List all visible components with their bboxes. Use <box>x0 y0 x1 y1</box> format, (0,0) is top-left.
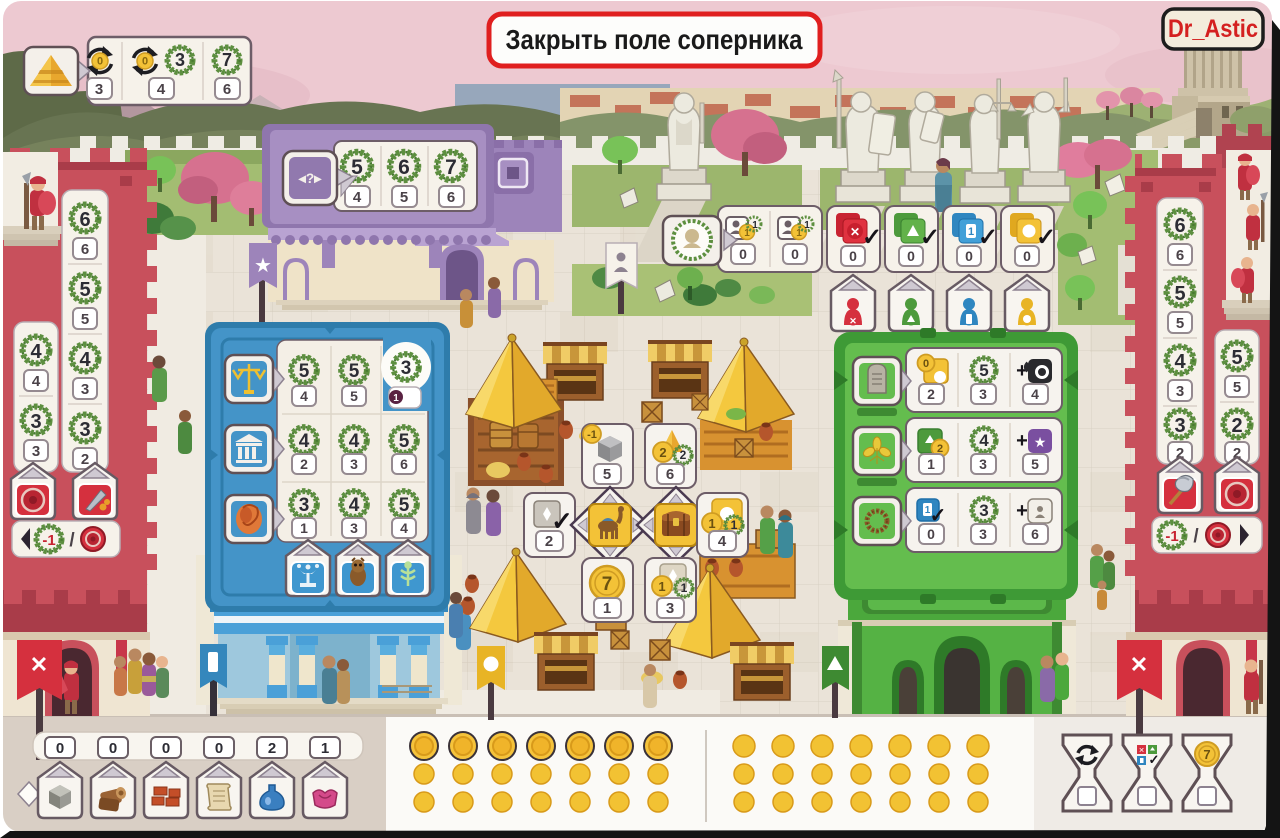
svg-text:3: 3 <box>32 443 40 460</box>
svg-text:1: 1 <box>804 220 810 231</box>
svg-text:5: 5 <box>79 279 90 301</box>
svg-text:4: 4 <box>32 373 41 390</box>
svg-text:✓: ✓ <box>920 224 940 251</box>
svg-text:3: 3 <box>401 358 412 379</box>
svg-text:6: 6 <box>1176 247 1184 264</box>
svg-text:5: 5 <box>399 431 410 452</box>
svg-text:5: 5 <box>1233 379 1241 396</box>
svg-text:7: 7 <box>445 156 457 179</box>
svg-text:-1: -1 <box>42 532 55 549</box>
svg-text:3: 3 <box>979 501 988 520</box>
svg-text:5: 5 <box>1176 315 1184 332</box>
svg-text:0: 0 <box>907 248 915 264</box>
svg-text:/: / <box>69 530 75 551</box>
svg-text:5: 5 <box>603 466 611 483</box>
svg-text:4: 4 <box>79 349 91 371</box>
svg-text:0: 0 <box>965 248 973 264</box>
svg-text:4: 4 <box>979 431 989 450</box>
svg-text:3: 3 <box>979 456 987 472</box>
svg-text:6: 6 <box>79 209 90 231</box>
svg-text:4: 4 <box>349 495 360 516</box>
svg-text:+: + <box>1016 500 1028 522</box>
svg-text:3: 3 <box>299 495 310 516</box>
svg-text:2: 2 <box>545 533 553 550</box>
svg-text:0: 0 <box>791 246 799 262</box>
svg-text:0: 0 <box>849 248 857 264</box>
svg-text:0: 0 <box>1023 248 1031 264</box>
svg-text:4: 4 <box>300 388 308 404</box>
svg-text:5: 5 <box>350 388 358 404</box>
svg-text:5: 5 <box>400 189 408 206</box>
svg-text:5: 5 <box>979 361 988 380</box>
svg-text:5: 5 <box>1231 347 1242 369</box>
svg-text:6: 6 <box>81 241 89 258</box>
svg-text:3: 3 <box>350 520 358 536</box>
svg-text:4: 4 <box>1174 351 1186 373</box>
svg-text:5: 5 <box>81 311 89 328</box>
svg-text:3: 3 <box>1174 415 1185 437</box>
svg-text:4: 4 <box>718 533 727 550</box>
svg-text:0: 0 <box>923 358 929 370</box>
svg-text:7: 7 <box>602 574 613 595</box>
svg-text:4: 4 <box>299 431 310 452</box>
svg-text:◂?▸: ◂?▸ <box>298 170 323 186</box>
svg-text:5: 5 <box>399 495 410 516</box>
svg-text:3: 3 <box>79 419 90 441</box>
svg-text:★: ★ <box>1034 434 1047 450</box>
svg-text:1: 1 <box>321 740 329 757</box>
svg-text:1: 1 <box>708 516 715 531</box>
svg-text:-1: -1 <box>1165 528 1178 545</box>
svg-text:5: 5 <box>349 361 360 382</box>
svg-text:3: 3 <box>30 411 41 433</box>
svg-text:0: 0 <box>927 526 935 542</box>
svg-text:✕: ✕ <box>849 316 857 326</box>
svg-text:6: 6 <box>1031 526 1039 542</box>
svg-text:6: 6 <box>1174 215 1185 237</box>
svg-text:5: 5 <box>299 361 310 382</box>
svg-text:1: 1 <box>300 520 308 536</box>
svg-text:2: 2 <box>1231 415 1242 437</box>
svg-text:-1: -1 <box>587 429 597 441</box>
svg-text:3: 3 <box>95 81 103 98</box>
svg-text:3: 3 <box>81 381 89 398</box>
svg-text:3: 3 <box>350 456 358 472</box>
svg-text:/: / <box>1193 526 1199 547</box>
svg-text:4: 4 <box>349 431 360 452</box>
svg-text:1: 1 <box>752 220 758 231</box>
svg-text:3: 3 <box>666 600 674 617</box>
svg-text:2: 2 <box>927 386 935 402</box>
svg-text:1: 1 <box>968 226 974 238</box>
svg-text:3: 3 <box>979 386 987 402</box>
svg-text:0: 0 <box>162 740 170 757</box>
svg-text:6: 6 <box>398 156 410 179</box>
svg-text:0: 0 <box>109 740 117 757</box>
svg-text:✕: ✕ <box>30 652 48 677</box>
svg-text:3: 3 <box>175 50 185 70</box>
svg-text:4: 4 <box>30 341 42 363</box>
svg-text:2: 2 <box>268 740 276 757</box>
svg-text:2: 2 <box>680 448 687 462</box>
svg-text:✕: ✕ <box>1130 652 1148 677</box>
svg-text:1: 1 <box>603 600 611 617</box>
svg-text:0: 0 <box>215 740 223 757</box>
svg-text:✕: ✕ <box>1139 748 1145 755</box>
svg-text:0: 0 <box>739 246 747 262</box>
svg-text:6: 6 <box>447 189 455 206</box>
svg-text:4: 4 <box>353 189 362 206</box>
svg-text:★: ★ <box>254 255 272 277</box>
svg-text:1: 1 <box>393 393 399 404</box>
svg-text:2: 2 <box>81 451 89 468</box>
svg-text:5: 5 <box>1031 456 1039 472</box>
svg-text:6: 6 <box>400 456 408 472</box>
svg-text:1: 1 <box>927 456 935 472</box>
svg-text:1: 1 <box>658 579 665 594</box>
svg-text:✓: ✓ <box>978 224 998 251</box>
svg-text:4: 4 <box>157 81 166 98</box>
svg-text:3: 3 <box>1176 383 1184 400</box>
svg-text:Dr_Astic: Dr_Astic <box>1168 15 1258 43</box>
svg-text:7: 7 <box>222 50 232 70</box>
svg-text:6: 6 <box>223 81 231 98</box>
svg-text:6: 6 <box>666 466 674 483</box>
svg-text:+: + <box>1016 430 1028 452</box>
svg-text:0: 0 <box>56 740 64 757</box>
svg-text:3: 3 <box>979 526 987 542</box>
svg-text:5: 5 <box>1174 283 1185 305</box>
svg-text:2: 2 <box>300 456 308 472</box>
svg-text:7: 7 <box>1203 747 1210 762</box>
svg-text:1: 1 <box>681 581 688 595</box>
svg-text:2: 2 <box>659 445 666 460</box>
svg-text:Закрыть поле соперника: Закрыть поле соперника <box>506 24 803 55</box>
svg-text:✓: ✓ <box>862 224 882 251</box>
svg-text:1: 1 <box>731 518 738 532</box>
svg-text:✕: ✕ <box>850 225 860 239</box>
svg-text:✓: ✓ <box>1036 224 1056 251</box>
svg-text:4: 4 <box>400 520 408 536</box>
svg-text:4: 4 <box>1031 386 1039 402</box>
svg-text:✓: ✓ <box>1149 752 1160 767</box>
